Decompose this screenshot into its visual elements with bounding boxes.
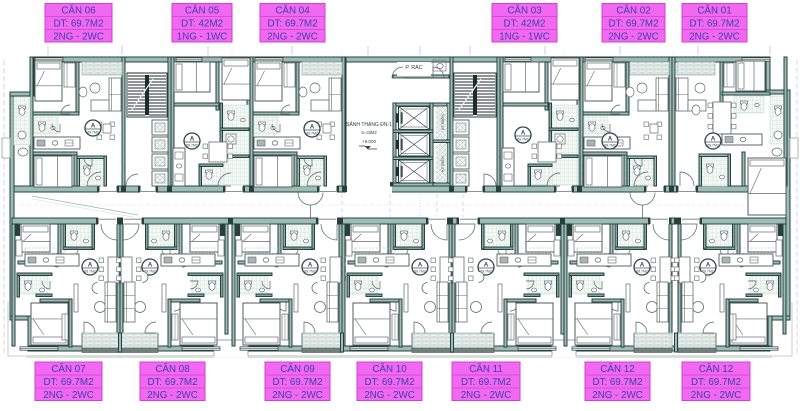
svg-text:CĂN 10: CĂN 10 <box>372 364 407 375</box>
svg-text:KT ĐIỆN: KT ĐIỆN <box>440 156 445 172</box>
svg-text:69.7M2: 69.7M2 <box>87 131 98 135</box>
svg-text:DT: 69.7M2: DT: 69.7M2 <box>147 377 197 388</box>
svg-text:A: A <box>310 125 315 131</box>
svg-text:2NG - 2WC: 2NG - 2WC <box>364 390 415 401</box>
svg-text:2NG - 2WC: 2NG - 2WC <box>267 32 318 43</box>
svg-text:DT: 69.7M2: DT: 69.7M2 <box>43 377 93 388</box>
svg-text:CĂN 01: CĂN 01 <box>697 6 731 17</box>
svg-text:69.7M2: 69.7M2 <box>707 144 718 148</box>
svg-text:CĂN 03: CĂN 03 <box>507 6 542 17</box>
svg-text:DT: 69.7M2: DT: 69.7M2 <box>461 377 511 388</box>
svg-text:CĂN 05: CĂN 05 <box>185 6 220 17</box>
svg-text:2NG - 2WC: 2NG - 2WC <box>608 32 659 43</box>
svg-text:CĂN 02: CĂN 02 <box>616 6 650 17</box>
svg-text:69.7M2: 69.7M2 <box>304 270 315 274</box>
svg-text:A: A <box>521 131 526 137</box>
svg-text:DT: 69.7M2: DT: 69.7M2 <box>267 19 317 30</box>
svg-text:CĂN 11: CĂN 11 <box>469 364 503 375</box>
svg-text:69.7M2: 69.7M2 <box>84 270 95 274</box>
svg-text:SẢNH THANG ĐN-1: SẢNH THANG ĐN-1 <box>346 121 392 128</box>
svg-text:2NG - 2WC: 2NG - 2WC <box>689 32 740 43</box>
svg-text:KT ĐIỆN: KT ĐIỆN <box>440 114 445 130</box>
svg-text:A: A <box>88 263 93 269</box>
svg-text:DT: 69.7M2: DT: 69.7M2 <box>53 19 103 30</box>
svg-text:2NG - 2WC: 2NG - 2WC <box>592 390 643 401</box>
svg-text:2NG - 2WC: 2NG - 2WC <box>43 390 94 401</box>
svg-text:CĂN 09: CĂN 09 <box>280 364 314 375</box>
svg-text:A: A <box>608 137 613 143</box>
svg-text:A: A <box>706 263 711 269</box>
svg-text:CĂN 12: CĂN 12 <box>699 364 733 375</box>
svg-text:P. RÁC: P. RÁC <box>405 64 422 71</box>
svg-text:A: A <box>91 124 96 130</box>
svg-text:DT: 69.7M2: DT: 69.7M2 <box>364 377 414 388</box>
svg-text:A: A <box>190 137 195 143</box>
svg-text:CĂN 12: CĂN 12 <box>600 364 634 375</box>
svg-text:69.7M2: 69.7M2 <box>414 270 425 274</box>
svg-text:A: A <box>711 137 716 143</box>
svg-text:+9.000: +9.000 <box>362 139 377 144</box>
svg-text:CĂN 04: CĂN 04 <box>275 6 310 17</box>
svg-text:DT: 69.7M2: DT: 69.7M2 <box>272 377 322 388</box>
svg-text:A: A <box>308 263 313 269</box>
svg-text:DT: 42M2: DT: 42M2 <box>504 19 546 30</box>
svg-text:DT: 69.7M2: DT: 69.7M2 <box>592 377 642 388</box>
svg-text:CĂN 07: CĂN 07 <box>51 364 85 375</box>
svg-text:69.7M2: 69.7M2 <box>517 138 528 142</box>
svg-text:2NG - 2WC: 2NG - 2WC <box>53 32 104 43</box>
svg-text:CĂN 08: CĂN 08 <box>155 364 190 375</box>
svg-text:2NG - 2WC: 2NG - 2WC <box>691 390 742 401</box>
svg-text:DT: 69.7M2: DT: 69.7M2 <box>608 19 658 30</box>
svg-text:69.7M2: 69.7M2 <box>604 144 615 148</box>
svg-text:A: A <box>148 263 153 269</box>
svg-text:1NG - 1WC: 1NG - 1WC <box>499 32 550 43</box>
svg-text:A: A <box>640 263 645 269</box>
svg-text:A: A <box>484 263 489 269</box>
svg-text:2NG - 2WC: 2NG - 2WC <box>461 390 512 401</box>
svg-text:DT: 69.7M2: DT: 69.7M2 <box>689 19 739 30</box>
svg-text:A: A <box>418 263 423 269</box>
svg-text:69.7M2: 69.7M2 <box>636 270 647 274</box>
svg-text:2NG - 2WC: 2NG - 2WC <box>147 390 198 401</box>
svg-text:S=33M2: S=33M2 <box>361 130 377 135</box>
svg-text:1NG - 1WC: 1NG - 1WC <box>177 32 228 43</box>
svg-text:DT: 69.7M2: DT: 69.7M2 <box>691 377 741 388</box>
svg-text:69.7M2: 69.7M2 <box>186 144 197 148</box>
svg-text:69.7M2: 69.7M2 <box>306 132 317 136</box>
svg-text:2NG - 2WC: 2NG - 2WC <box>272 390 323 401</box>
svg-text:DT: 42M2: DT: 42M2 <box>181 19 223 30</box>
svg-text:CĂN 06: CĂN 06 <box>61 6 96 17</box>
